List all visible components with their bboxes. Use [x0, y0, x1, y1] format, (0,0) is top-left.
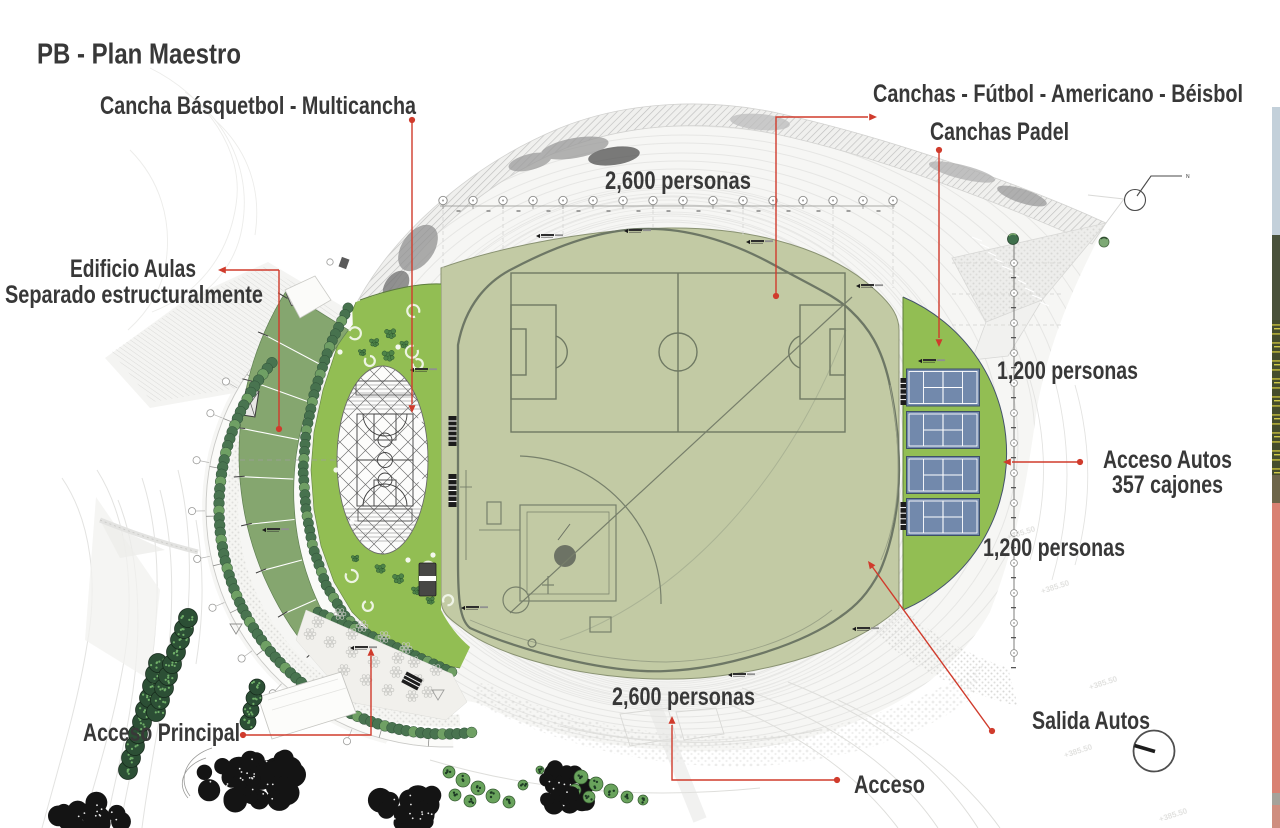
svg-text:Acceso: Acceso [854, 771, 925, 799]
svg-text:N: N [1186, 174, 1190, 180]
svg-text:Edificio Aulas: Edificio Aulas [70, 255, 196, 283]
svg-text:Salida Autos: Salida Autos [1032, 707, 1150, 735]
svg-text:1,200 personas: 1,200 personas [997, 357, 1138, 385]
svg-text:Canchas Padel: Canchas Padel [930, 118, 1069, 146]
svg-text:Canchas - Fútbol - Americano -: Canchas - Fútbol - Americano - Béisbol [873, 80, 1243, 108]
svg-text:2,600 personas: 2,600 personas [605, 167, 751, 195]
svg-text:357 cajones: 357 cajones [1112, 471, 1223, 499]
svg-text:Acceso Principal: Acceso Principal [83, 719, 240, 747]
svg-text:PB - Plan Maestro: PB - Plan Maestro [37, 39, 241, 71]
svg-text:Acceso Autos: Acceso Autos [1103, 446, 1232, 474]
svg-text:1,200 personas: 1,200 personas [983, 534, 1125, 562]
svg-text:Separado estructuralmente: Separado estructuralmente [5, 281, 263, 309]
svg-text:Cancha Básquetbol - Multicanch: Cancha Básquetbol - Multicancha [100, 92, 417, 120]
svg-text:2,600 personas: 2,600 personas [612, 683, 755, 711]
